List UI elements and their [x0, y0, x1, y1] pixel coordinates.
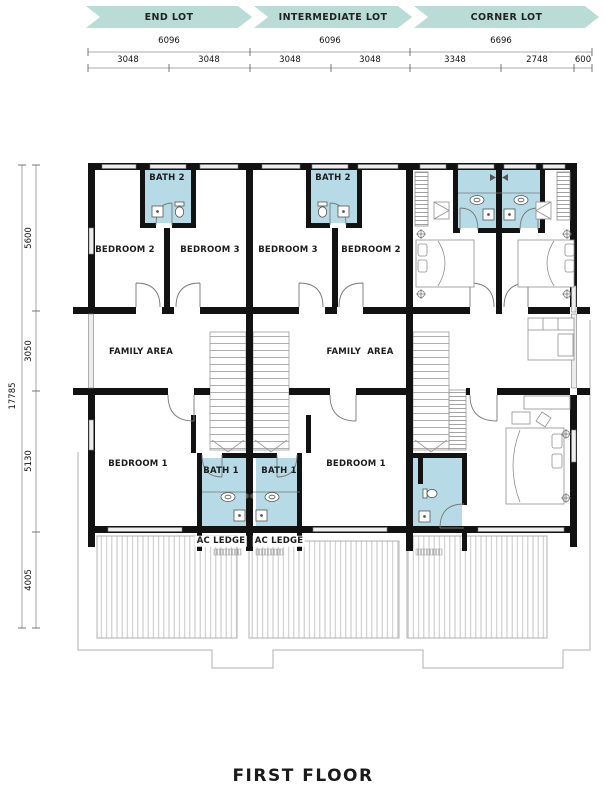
sofa — [528, 318, 574, 360]
room-label-bedroom1-end: BEDROOM 1 — [108, 460, 167, 469]
room-label-family-end: FAMILY AREA — [109, 348, 173, 357]
page-title: FIRST FLOOR — [232, 766, 373, 786]
floor-plan-drawing — [0, 0, 606, 800]
room-label-bedroom3-end: BEDROOM 3 — [180, 246, 239, 255]
room-label-bath1-end: BATH 1 — [203, 467, 238, 476]
room-label-bath2-end: BATH 2 — [149, 174, 184, 183]
bed-left — [416, 240, 474, 287]
bed-right — [518, 240, 574, 287]
room-label-bath2-intermediate: BATH 2 — [315, 174, 350, 183]
roof-hatch — [97, 536, 547, 638]
room-label-bedroom1-intermediate: BEDROOM 1 — [326, 460, 385, 469]
room-label-bedroom3-intermediate: BEDROOM 3 — [258, 246, 317, 255]
label-ac-ledge-end: AC LEDGE — [195, 536, 247, 547]
room-label-bath1-intermediate: BATH 1 — [261, 467, 296, 476]
room-label-bedroom2-intermediate: BEDROOM 2 — [341, 246, 400, 255]
desk-and-chair — [524, 396, 570, 427]
room-label-bedroom2-end: BEDROOM 2 — [95, 246, 154, 255]
room-label-family-intermediate: FAMILY AREA — [326, 348, 393, 357]
master-bed — [506, 412, 564, 504]
floor-plan-page: END LOT INTERMEDIATE LOT CORNER LOT 6096… — [0, 0, 606, 800]
label-ac-ledge-intermediate: AC LEDGE — [253, 536, 305, 547]
